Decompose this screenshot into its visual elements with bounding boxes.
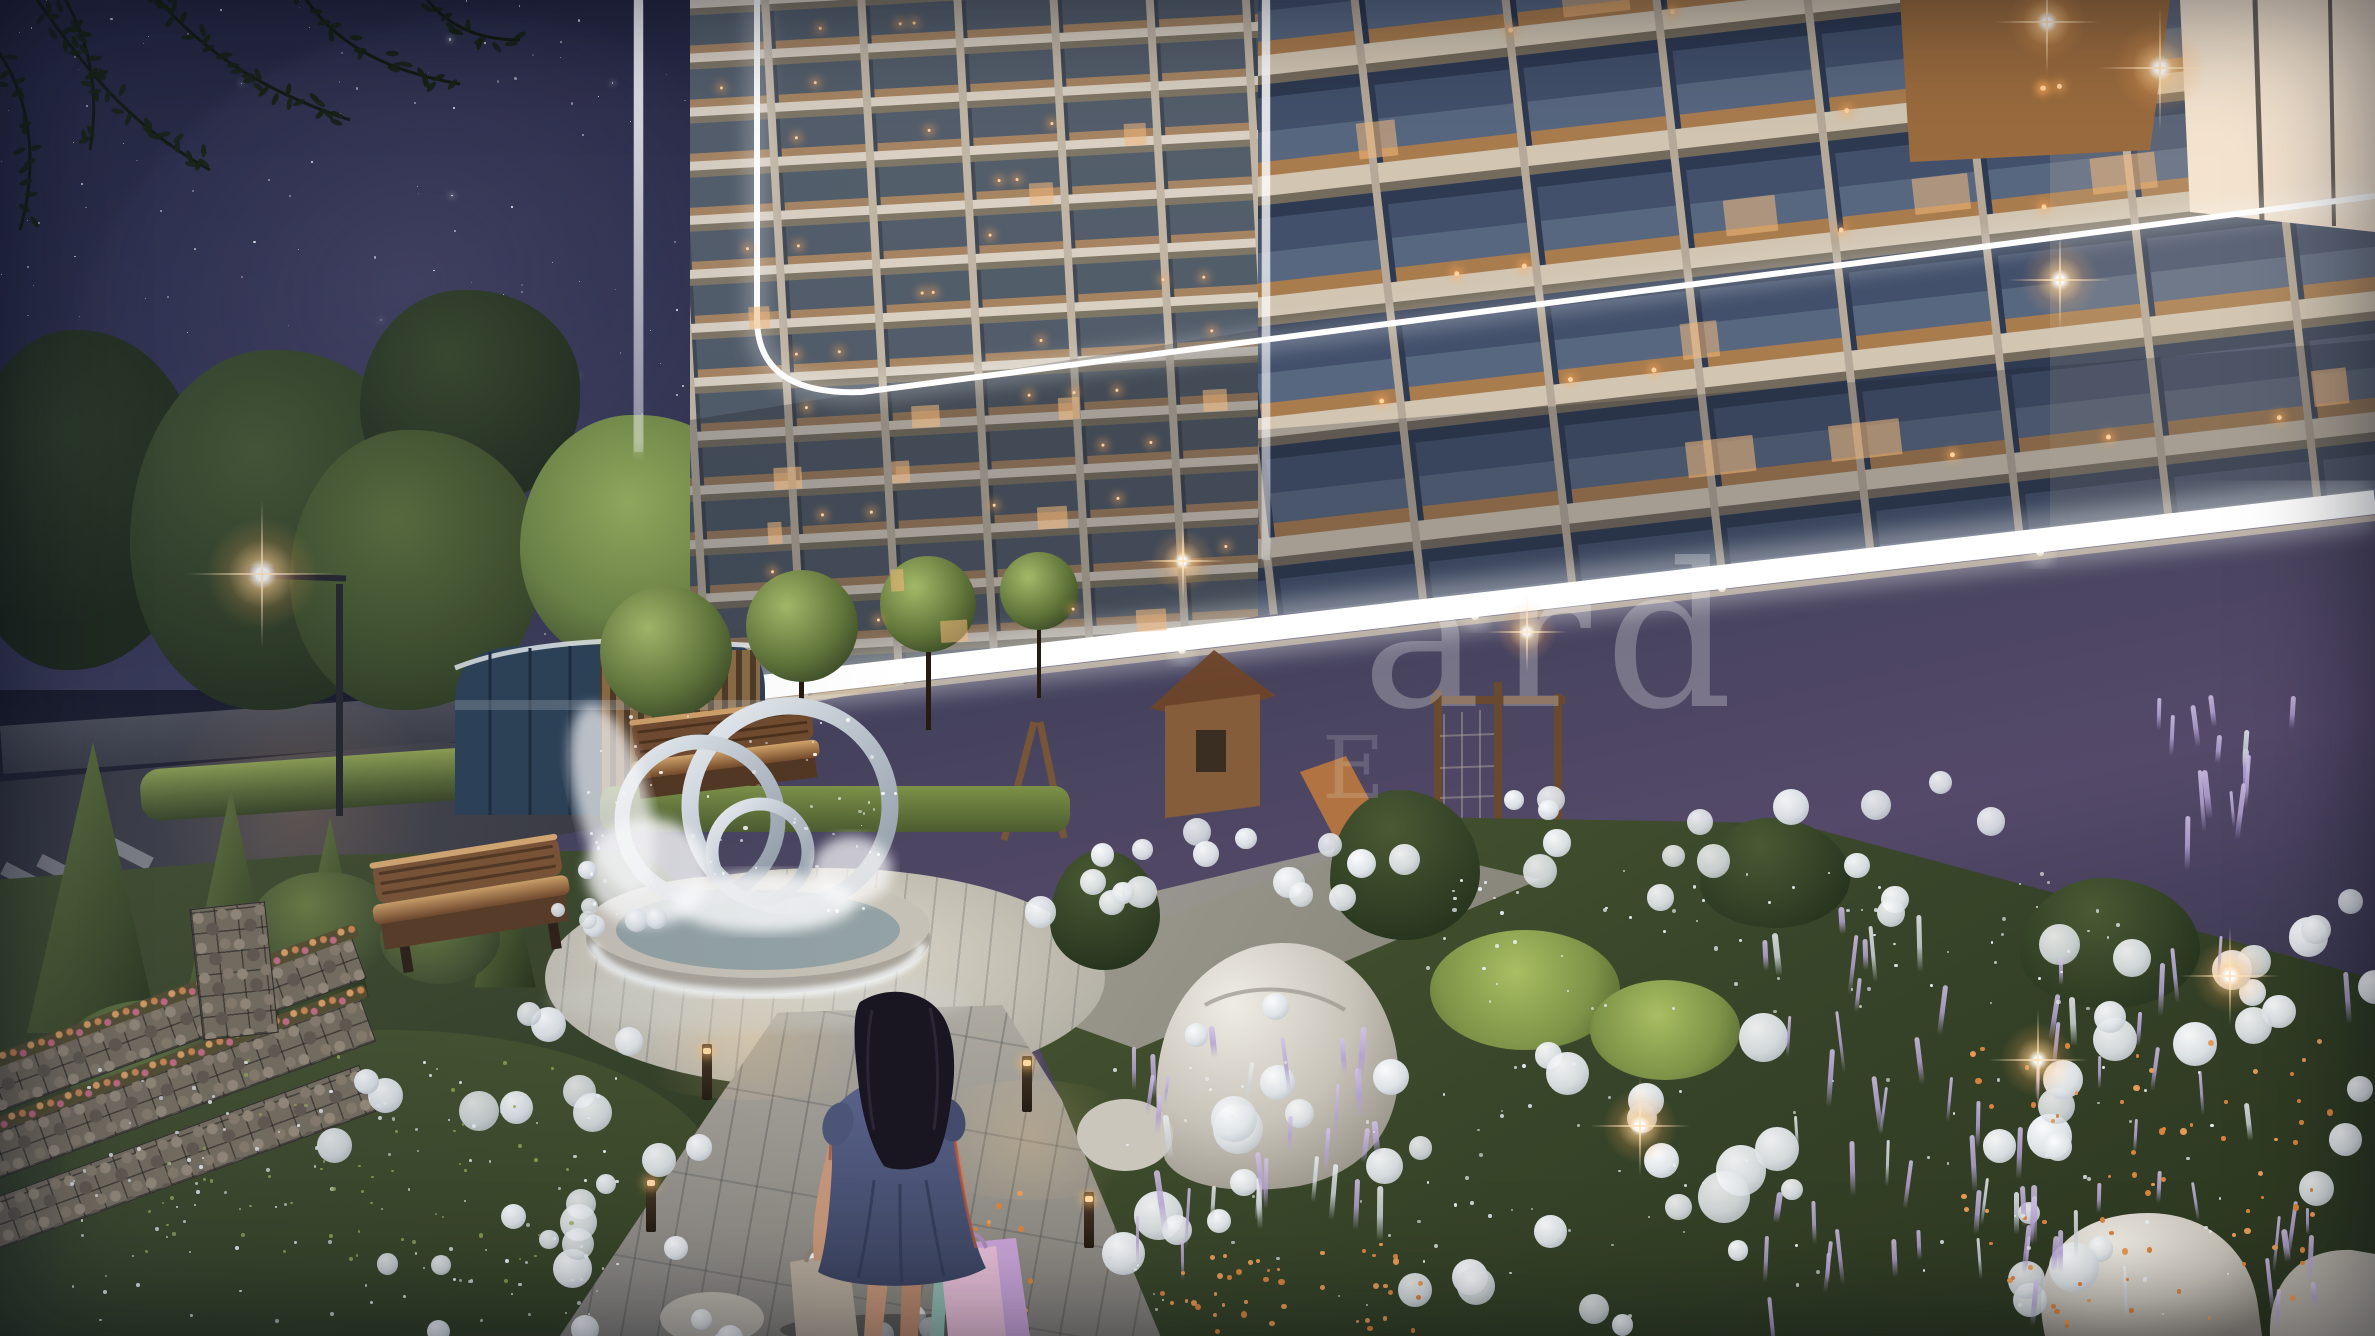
leaf	[35, 12, 47, 25]
facade-spotlight-flare	[1148, 526, 1218, 596]
garden-light-flare	[1495, 600, 1559, 664]
leaf	[111, 108, 125, 115]
leaf	[69, 50, 82, 55]
leaf	[12, 146, 26, 156]
downlight-flare	[2018, 238, 2102, 322]
leaf	[349, 35, 362, 40]
leaf	[430, 6, 443, 12]
leaf	[230, 68, 244, 75]
garden-light-flare	[2190, 936, 2270, 1016]
architectural-night-render: COFFEE	[0, 0, 2375, 1336]
leaf	[198, 23, 207, 37]
leaf	[386, 51, 399, 56]
leaf	[270, 92, 280, 106]
leaf	[308, 92, 321, 105]
bollard-light	[646, 1176, 656, 1232]
leaf	[117, 83, 127, 97]
downlight-flare	[2005, 0, 2089, 64]
leaf	[491, 41, 503, 54]
leaf	[399, 61, 413, 69]
leaf	[88, 55, 101, 61]
bollard-light	[702, 1044, 712, 1100]
downlight-flare	[2110, 18, 2210, 118]
leaf	[29, 215, 41, 229]
leaf	[104, 89, 113, 103]
garden-light-flare	[1998, 1020, 2078, 1100]
leaf	[5, 54, 19, 61]
leaf	[0, 81, 8, 87]
leaf	[62, 0, 76, 2]
foreground-branches	[0, 0, 600, 340]
curved-bench	[365, 833, 578, 977]
leaf	[143, 0, 154, 4]
leaf	[201, 144, 206, 157]
street-lamp-flare	[202, 514, 322, 634]
garden-light-flare	[1600, 1086, 1680, 1166]
leaf	[294, 0, 299, 5]
leaf	[164, 15, 176, 29]
girl-with-shopping-bags	[760, 970, 1140, 1336]
leaf	[55, 0, 64, 13]
